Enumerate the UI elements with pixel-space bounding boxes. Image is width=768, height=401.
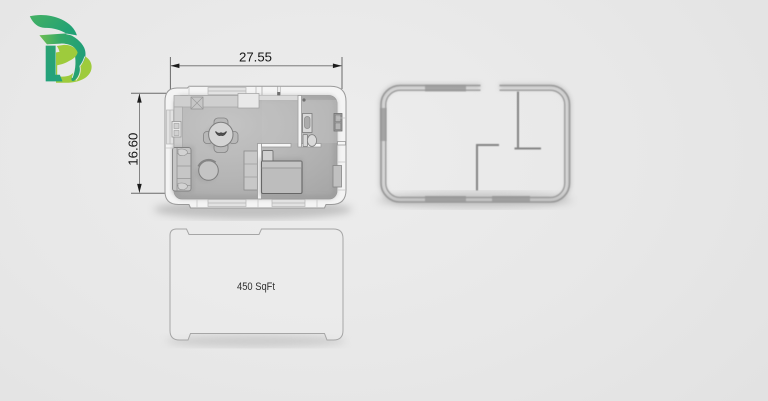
svg-text:27.55: 27.55	[239, 49, 272, 64]
svg-text:450 SqFt: 450 SqFt	[237, 281, 275, 293]
svg-text:16.60: 16.60	[126, 133, 141, 166]
